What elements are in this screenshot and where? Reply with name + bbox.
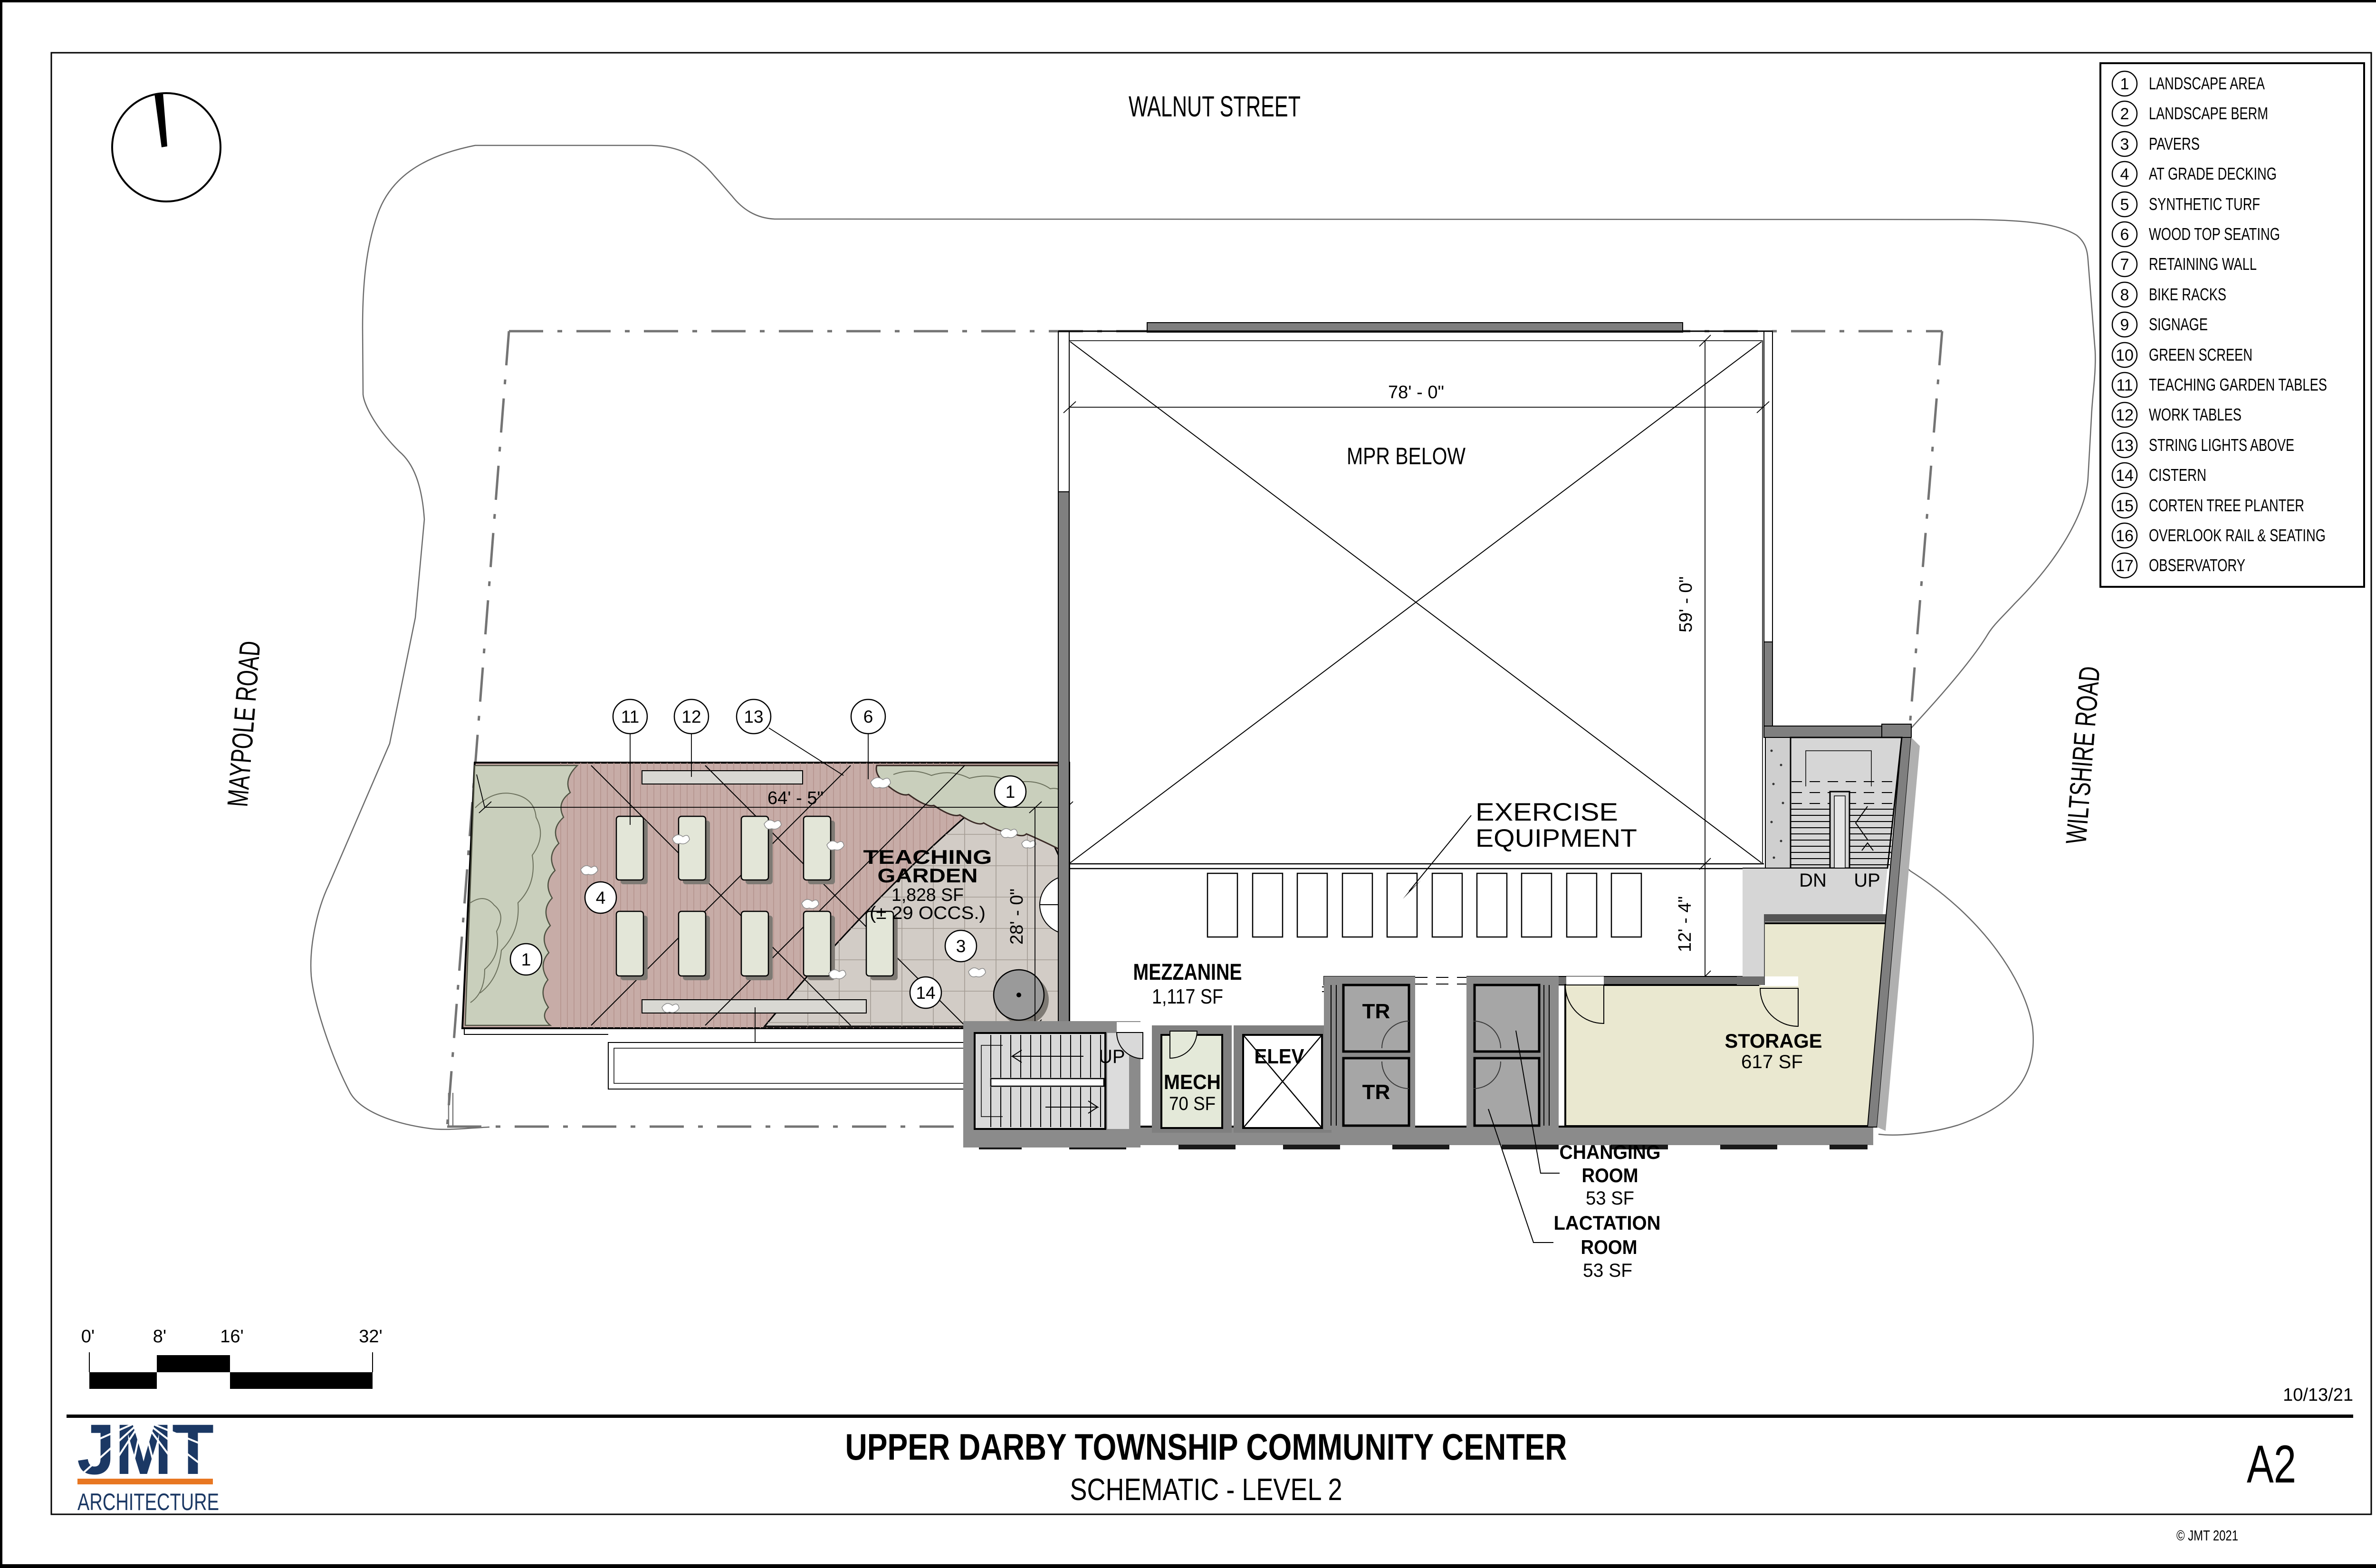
svg-text:1,828 SF: 1,828 SF [891,885,964,905]
svg-text:WOOD TOP SEATING: WOOD TOP SEATING [2149,224,2280,244]
svg-text:13: 13 [744,707,763,727]
svg-text:CHANGING: CHANGING [1560,1141,1661,1163]
svg-text:SCHEMATIC - LEVEL 2: SCHEMATIC - LEVEL 2 [1070,1472,1342,1507]
svg-text:6: 6 [863,707,873,727]
svg-text:WORK TABLES: WORK TABLES [2149,405,2242,424]
svg-text:2: 2 [2120,105,2129,123]
svg-text:70 SF: 70 SF [1169,1093,1216,1114]
svg-text:12' - 4": 12' - 4" [1675,896,1695,952]
svg-text:1: 1 [2120,75,2129,93]
svg-text:STORAGE: STORAGE [1725,1030,1822,1052]
svg-text:TR: TR [1362,1080,1390,1104]
svg-text:TR: TR [1362,1000,1390,1023]
svg-text:LANDSCAPE AREA: LANDSCAPE AREA [2149,74,2265,93]
svg-text:© JMT 2021: © JMT 2021 [2176,1527,2238,1544]
svg-text:12: 12 [2116,406,2134,424]
svg-text:STRING LIGHTS ABOVE: STRING LIGHTS ABOVE [2149,435,2294,455]
svg-text:LANDSCAPE BERM: LANDSCAPE BERM [2149,104,2268,123]
svg-text:7: 7 [2120,256,2129,274]
svg-text:CORTEN TREE PLANTER: CORTEN TREE PLANTER [2149,496,2304,515]
svg-text:MPR BELOW: MPR BELOW [1347,443,1466,469]
svg-text:ARCHITECTURE: ARCHITECTURE [77,1489,219,1515]
svg-text:8: 8 [2120,286,2129,304]
svg-text:TEACHING GARDEN TABLES: TEACHING GARDEN TABLES [2149,375,2327,394]
svg-text:13: 13 [2116,437,2134,455]
svg-text:ELEV: ELEV [1255,1045,1305,1068]
svg-text:MEZZANINE: MEZZANINE [1133,960,1242,985]
svg-text:ROOM: ROOM [1582,1164,1638,1186]
svg-text:DN: DN [1799,870,1827,891]
svg-text:ROOM: ROOM [1581,1236,1638,1258]
svg-text:8': 8' [153,1327,166,1347]
svg-text:11: 11 [2116,376,2133,394]
svg-text:17: 17 [2116,557,2134,575]
svg-text:RETAINING WALL: RETAINING WALL [2149,254,2257,274]
svg-text:SYNTHETIC TURF: SYNTHETIC TURF [2149,194,2260,214]
svg-text:6: 6 [2120,226,2129,244]
svg-text:OBSERVATORY: OBSERVATORY [2149,555,2245,575]
svg-text:4: 4 [596,888,606,908]
svg-text:0': 0' [81,1327,95,1347]
svg-text:SIGNAGE: SIGNAGE [2149,315,2208,334]
svg-text:EXERCISE: EXERCISE [1475,798,1618,826]
svg-text:PAVERS: PAVERS [2149,134,2200,153]
svg-text:1: 1 [521,950,531,969]
svg-text:GREEN SCREEN: GREEN SCREEN [2149,345,2252,364]
svg-text:UPPER DARBY TOWNSHIP COMMUNITY: UPPER DARBY TOWNSHIP COMMUNITY CENTER [845,1426,1567,1468]
svg-text:64' - 5": 64' - 5" [767,788,824,808]
svg-text:UP: UP [1854,870,1880,891]
svg-text:16': 16' [220,1327,244,1347]
svg-text:BIKE RACKS: BIKE RACKS [2149,285,2226,304]
svg-text:11: 11 [621,707,639,727]
svg-text:WALNUT STREET: WALNUT STREET [1129,90,1301,123]
svg-text:15: 15 [2116,497,2134,515]
svg-text:617 SF: 617 SF [1741,1052,1803,1072]
svg-text:5: 5 [2120,196,2129,214]
svg-text:16: 16 [2116,527,2134,545]
svg-text:9: 9 [2120,316,2129,334]
svg-text:MECH: MECH [1164,1071,1221,1094]
svg-text:28' - 0": 28' - 0" [1007,889,1027,945]
svg-text:(± 29 OCCS.): (± 29 OCCS.) [870,903,986,923]
svg-text:OVERLOOK RAIL & SEATING: OVERLOOK RAIL & SEATING [2149,526,2326,545]
svg-text:32': 32' [359,1327,383,1347]
svg-text:14: 14 [2116,467,2134,485]
svg-text:53 SF: 53 SF [1583,1260,1632,1281]
svg-text:3: 3 [956,937,966,956]
svg-text:53 SF: 53 SF [1586,1188,1634,1209]
svg-text:14: 14 [916,983,935,1003]
svg-text:1: 1 [1006,782,1016,802]
svg-text:12: 12 [681,707,701,727]
svg-text:AT GRADE DECKING: AT GRADE DECKING [2149,164,2277,183]
svg-text:CISTERN: CISTERN [2149,465,2206,485]
svg-text:59' - 0": 59' - 0" [1676,576,1696,632]
svg-text:4: 4 [2120,165,2129,183]
svg-text:10/13/21: 10/13/21 [2283,1385,2353,1405]
svg-text:UP: UP [1099,1046,1125,1067]
svg-text:LACTATION: LACTATION [1554,1212,1661,1234]
svg-text:GARDEN: GARDEN [878,864,978,887]
svg-text:EQUIPMENT: EQUIPMENT [1475,824,1637,852]
svg-text:1,117 SF: 1,117 SF [1152,985,1223,1008]
svg-text:A2: A2 [2247,1434,2296,1494]
svg-text:3: 3 [2120,135,2129,153]
svg-text:78' - 0": 78' - 0" [1388,382,1444,402]
svg-text:10: 10 [2116,346,2134,364]
